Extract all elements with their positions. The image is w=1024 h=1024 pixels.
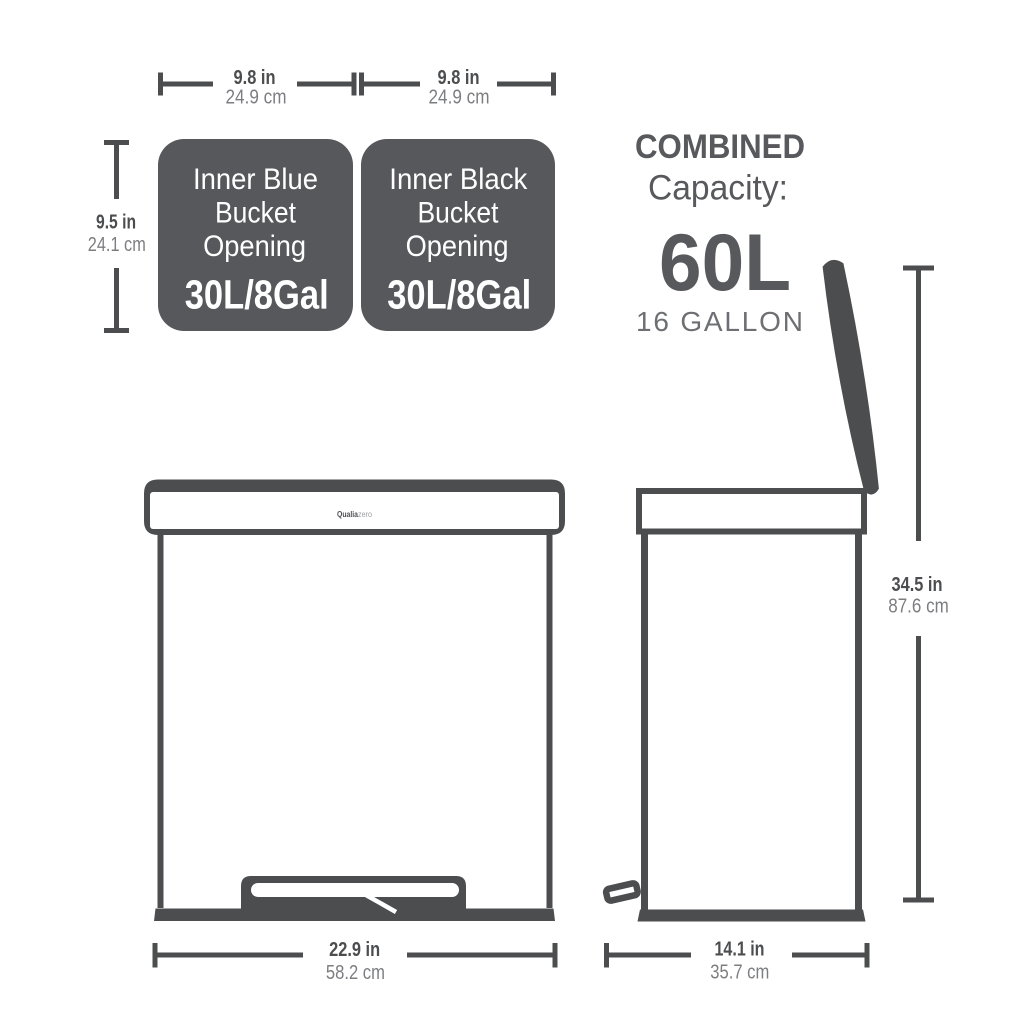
svg-text:Opening: Opening	[406, 230, 509, 263]
svg-text:30L/8Gal: 30L/8Gal	[185, 272, 329, 318]
svg-text:Bucket: Bucket	[215, 197, 297, 230]
svg-text:35.7 cm: 35.7 cm	[710, 962, 769, 984]
svg-text:14.1 in: 14.1 in	[715, 939, 765, 961]
svg-text:zero: zero	[358, 509, 372, 519]
svg-text:Inner Black: Inner Black	[389, 163, 528, 196]
svg-text:Opening: Opening	[203, 230, 306, 263]
svg-text:COMBINED: COMBINED	[635, 128, 805, 166]
svg-text:60L: 60L	[659, 218, 791, 308]
svg-text:87.6 cm: 87.6 cm	[888, 596, 949, 618]
svg-text:Bucket: Bucket	[418, 197, 500, 230]
svg-text:30L/8Gal: 30L/8Gal	[387, 272, 531, 318]
svg-text:16 GALLON: 16 GALLON	[636, 306, 803, 337]
svg-text:24.9 cm: 24.9 cm	[429, 87, 490, 109]
svg-text:Inner Blue: Inner Blue	[193, 163, 318, 196]
svg-text:24.9 cm: 24.9 cm	[226, 87, 287, 109]
svg-text:22.9 in: 22.9 in	[329, 939, 380, 961]
svg-text:34.5 in: 34.5 in	[892, 574, 943, 596]
svg-text:24.1 cm: 24.1 cm	[88, 234, 146, 256]
svg-text:58.2 cm: 58.2 cm	[326, 962, 385, 984]
svg-text:9.5 in: 9.5 in	[96, 212, 136, 234]
svg-text:Qualia: Qualia	[337, 509, 358, 519]
svg-text:Capacity:: Capacity:	[648, 169, 788, 208]
